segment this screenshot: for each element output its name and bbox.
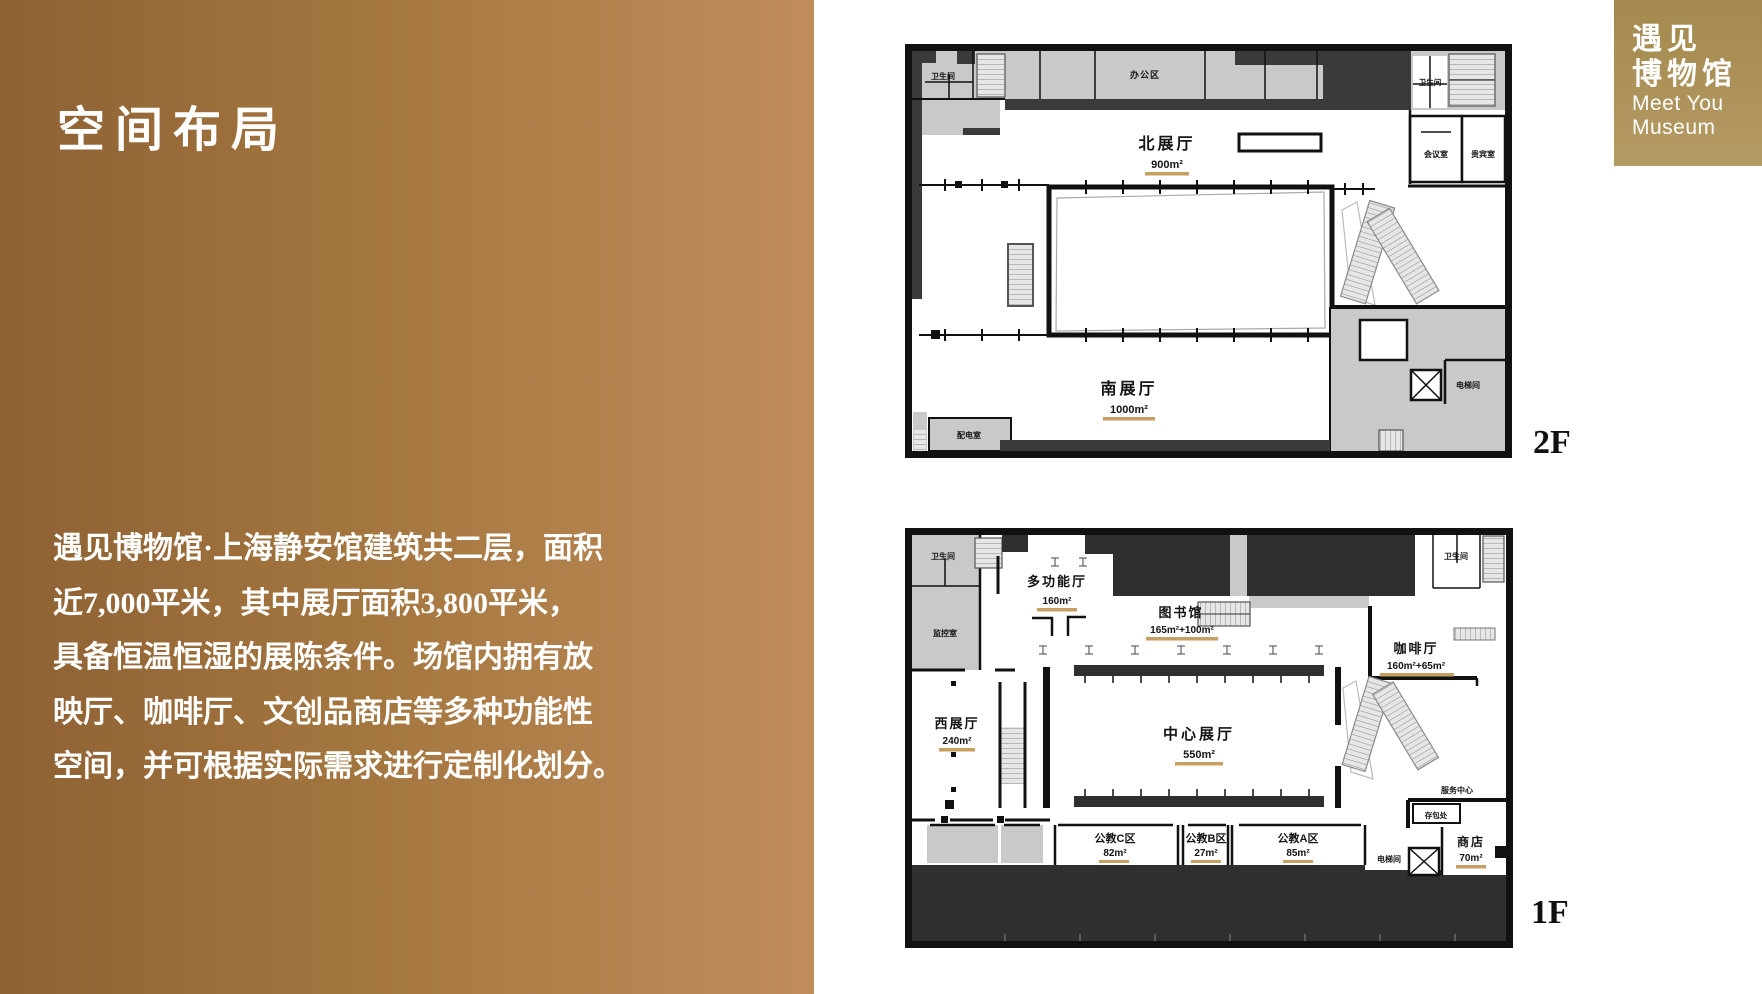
museum-logo: 遇见 博物馆 Meet You Museum: [1614, 0, 1762, 166]
f1-west-hall-stairs: [1002, 727, 1024, 784]
f1-library-underline: [1146, 637, 1218, 641]
f2-display-case: [1239, 134, 1321, 151]
f2-south-hall-label: 南展厅: [1100, 379, 1157, 398]
f1-west-hall-underline: [939, 748, 975, 752]
f1-cafe-underline: [1380, 673, 1454, 677]
f1-library-label: 图书馆: [1158, 605, 1203, 620]
f1-west-hall-area: 240m²: [943, 736, 973, 747]
logo-en-line1: Meet You: [1632, 92, 1762, 116]
f2-stairs-bottom-right: [1379, 430, 1403, 451]
page-title: 空间布局: [57, 90, 289, 160]
f1-shop-underline: [1456, 865, 1486, 869]
f1-center-hall-label: 中心展厅: [1163, 725, 1235, 743]
f1-elevator-label: 电梯间: [1377, 854, 1401, 864]
f2-north-hall-label: 北展厅: [1138, 135, 1195, 153]
f1-edu-a-underline: [1283, 860, 1313, 863]
f1-locker-label: 存包处: [1424, 810, 1448, 820]
floor-2-label: 2F: [1533, 424, 1571, 462]
f1-center-hall-area: 550m²: [1183, 749, 1215, 761]
paragraph-line: 遇见博物馆·上海静安馆建筑共二层，面积: [53, 522, 733, 577]
floor-1-label: 1F: [1531, 894, 1569, 932]
f1-toilet-right-label: 卫生间: [1444, 551, 1468, 561]
f2-north-hall-area: 900m²: [1151, 159, 1183, 171]
f1-edu-c-underline: [1099, 860, 1129, 863]
f2-meeting-label: 会议室: [1424, 149, 1448, 159]
f2-elevator-label: 电梯间: [1456, 380, 1480, 390]
f1-monitor-label: 监控室: [933, 628, 957, 638]
floor-plan-1f: 卫生间 监控室 卫生间 多功能厅 160m² 图书馆 165m²+100m² 咖…: [905, 528, 1513, 948]
f1-stairs-top-right: [1483, 536, 1504, 582]
logo-cn-line2: 博物馆: [1632, 57, 1762, 92]
paragraph-line: 近7,000平米，其中展厅面积3,800平米，: [53, 577, 733, 632]
f2-toilet-right-label: 卫生间: [1419, 77, 1442, 87]
paragraph-line: 具备恒温恒湿的展陈条件。场馆内拥有放: [53, 631, 733, 686]
f2-south-hall-area: 1000m²: [1110, 404, 1148, 416]
f2-office-label: 办公区: [1130, 69, 1160, 80]
f2-power-label: 配电室: [957, 430, 981, 440]
paragraph-line: 映厅、咖啡厅、文创品商店等多种功能性: [53, 686, 733, 741]
f1-west-hall-label: 西展厅: [934, 716, 979, 731]
f1-multi-hall-label: 多功能厅: [1027, 574, 1087, 589]
f2-stairs-top-left: [977, 54, 1005, 97]
f1-service-label: 服务中心: [1441, 785, 1473, 795]
f1-edu-a-area: 85m²: [1286, 848, 1310, 859]
f2-north-hall-underline: [1145, 172, 1189, 176]
f1-cafe-stairs: [1454, 628, 1495, 640]
f1-bottom-dark-strip: [912, 865, 1506, 941]
f1-edu-c-label: 公教C区: [1095, 831, 1136, 845]
f1-edu-b-label: 公教B区: [1186, 831, 1227, 845]
f1-toilet-left-label: 卫生间: [931, 551, 955, 561]
intro-paragraph: 遇见博物馆·上海静安馆建筑共二层，面积 近7,000平米，其中展厅面积3,800…: [53, 522, 733, 795]
f2-toilet-left-label: 卫生间: [931, 71, 955, 81]
f1-edu-b-underline: [1191, 860, 1221, 863]
f1-multi-hall-area: 160m²: [1043, 596, 1073, 607]
f1-shop-area: 70m²: [1459, 853, 1483, 864]
paragraph-line: 空间，并可根据实际需求进行定制化划分。: [53, 740, 733, 795]
f2-vip-label: 贵宾室: [1471, 149, 1495, 159]
f1-elevator: [1409, 848, 1439, 875]
f1-edu-c-area: 82m²: [1103, 848, 1127, 859]
f1-shop-label: 商店: [1457, 834, 1485, 849]
f1-gray-rooms-bottom-left: [927, 825, 1043, 863]
logo-en-line2: Museum: [1632, 116, 1762, 140]
left-gradient-panel: 空间布局 遇见博物馆·上海静安馆建筑共二层，面积 近7,000平米，其中展厅面积…: [0, 0, 814, 994]
f2-stairs-bottom-left: [914, 430, 926, 451]
f1-cafe-label: 咖啡厅: [1393, 641, 1438, 656]
f1-multi-hall-underline: [1037, 608, 1077, 612]
f2-south-hall-underline: [1103, 417, 1155, 421]
f1-center-hall-underline: [1175, 762, 1223, 766]
f1-library-area: 165m²+100m²: [1150, 625, 1214, 636]
f1-edu-b-area: 27m²: [1194, 848, 1218, 859]
floor-plan-2f: 卫生间 办公区 卫生间 会议室 贵宾室 北展厅 900m²: [905, 44, 1512, 458]
f1-cafe-area: 160m²+65m²: [1387, 661, 1446, 672]
f1-edu-a-label: 公教A区: [1278, 831, 1319, 845]
f2-stairs-mid-left: [1008, 244, 1033, 306]
logo-cn-line1: 遇见: [1632, 22, 1762, 57]
f2-meeting-rooms: [1410, 116, 1505, 182]
